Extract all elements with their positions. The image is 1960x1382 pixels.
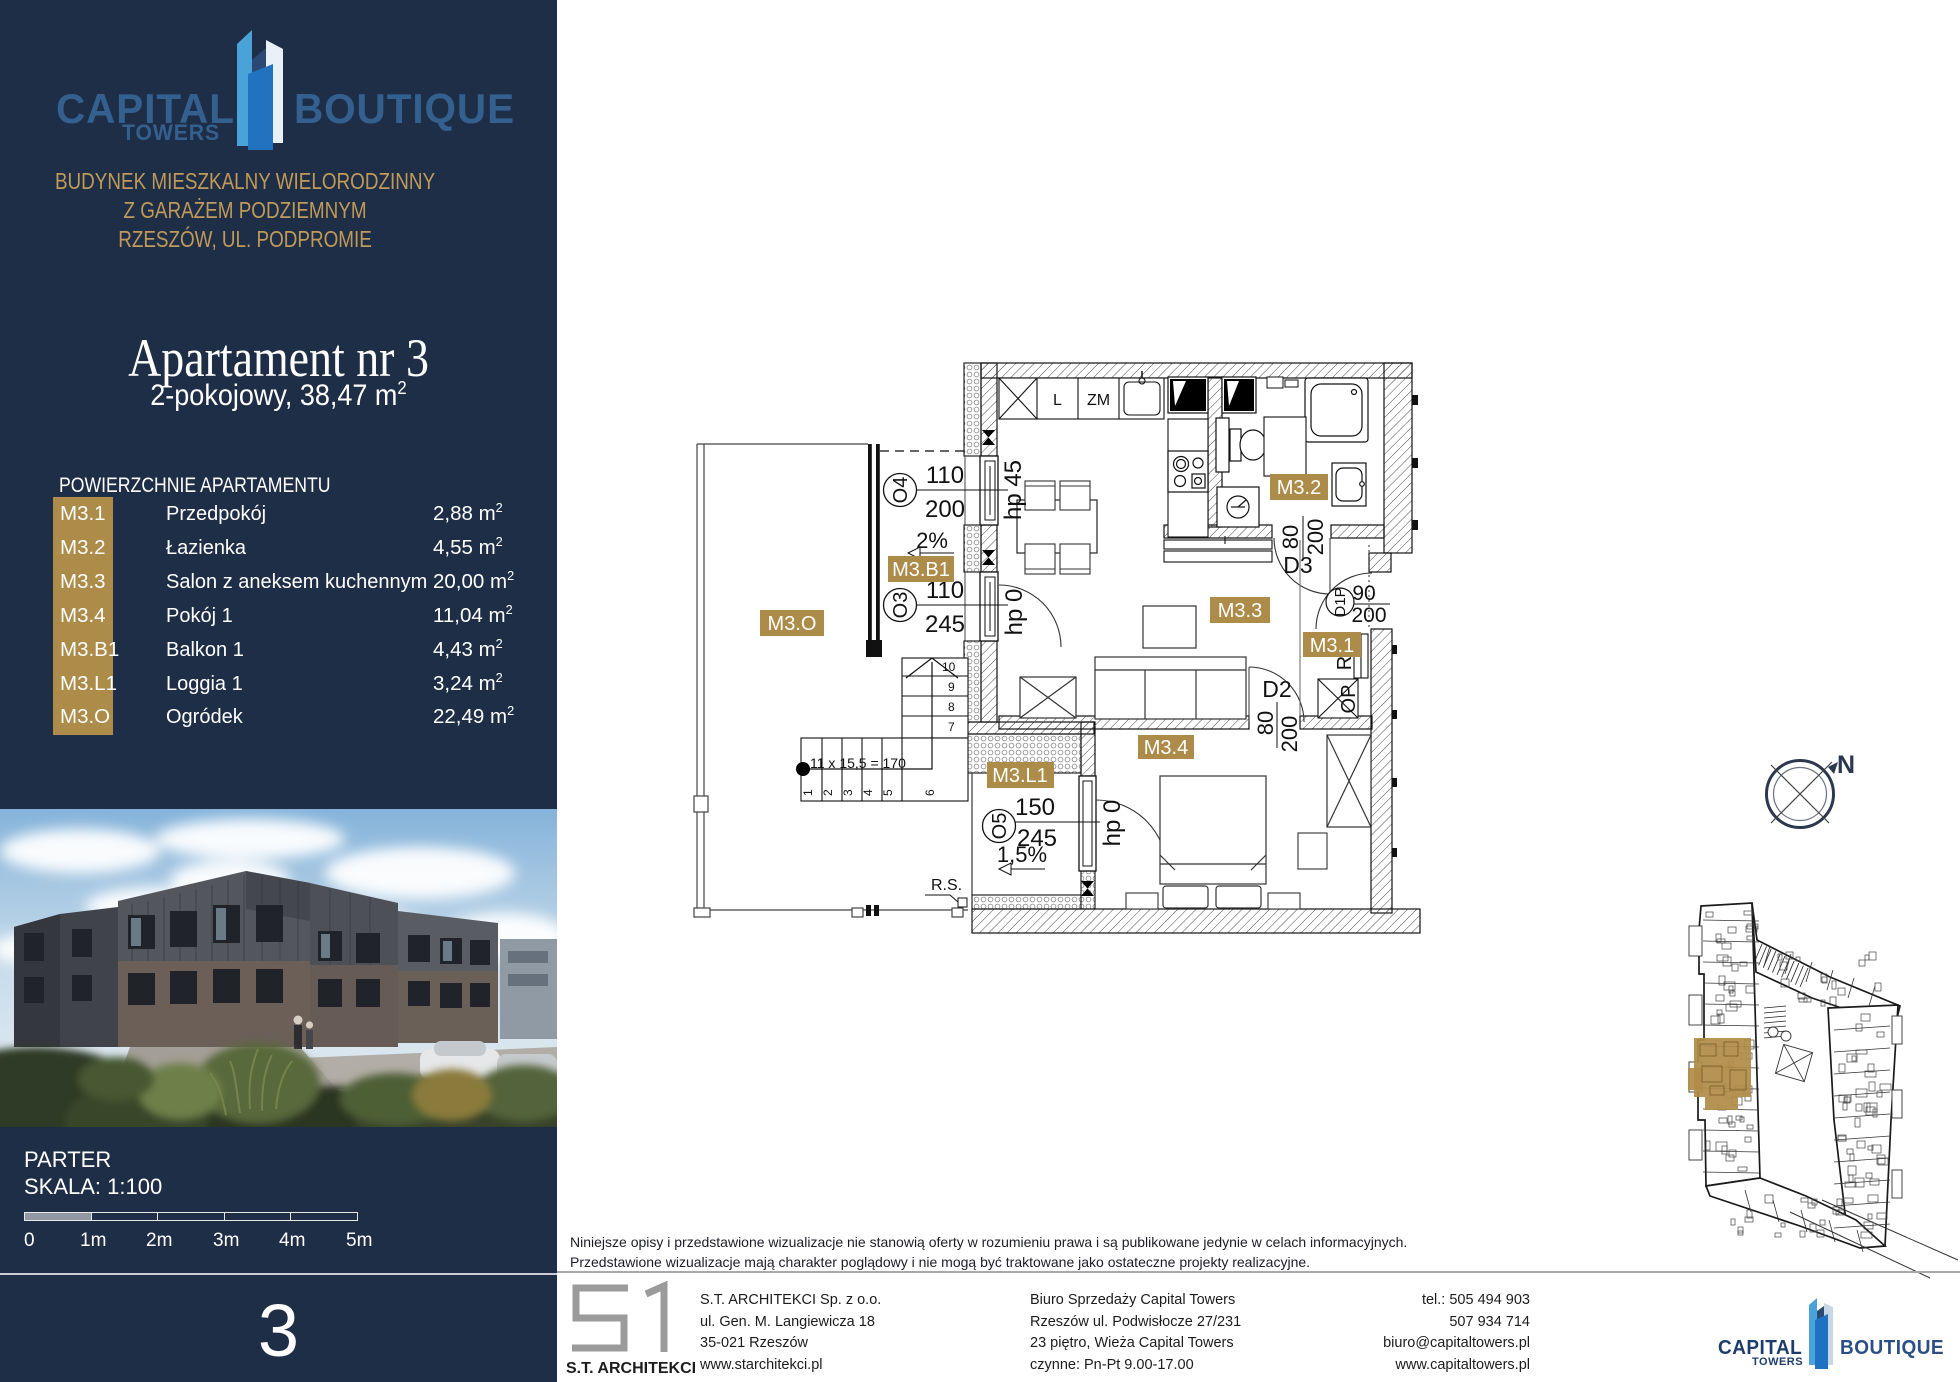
- svg-text:R: R: [1334, 656, 1356, 670]
- svg-text:80: 80: [1278, 525, 1303, 549]
- svg-text:hp 0: hp 0: [1099, 800, 1126, 847]
- svg-text:S.T. ARCHITEKCI: S.T. ARCHITEKCI: [566, 1360, 696, 1377]
- svg-text:4m: 4m: [279, 1230, 305, 1251]
- svg-text:M3.O: M3.O: [768, 613, 817, 635]
- svg-text:R.S.: R.S.: [931, 877, 962, 894]
- svg-text:200: 200: [1351, 604, 1386, 627]
- svg-text:2%: 2%: [916, 528, 948, 553]
- svg-text:80: 80: [1253, 711, 1278, 735]
- svg-text:D2: D2: [1262, 676, 1291, 702]
- svg-text:N: N: [1837, 751, 1855, 779]
- svg-text:hp 0: hp 0: [1001, 589, 1028, 636]
- svg-text:M3.L1: M3.L1: [992, 765, 1048, 787]
- svg-text:hp 45: hp 45: [1000, 460, 1027, 520]
- svg-text:D1P: D1P: [1332, 587, 1349, 616]
- svg-text:90: 90: [1352, 582, 1375, 605]
- svg-text:2m: 2m: [146, 1230, 172, 1251]
- svg-text:110: 110: [926, 462, 964, 489]
- svg-text:O5: O5: [989, 813, 1011, 840]
- svg-text:D3: D3: [1283, 552, 1312, 578]
- svg-text:O4: O4: [890, 477, 912, 504]
- svg-text:1,5%: 1,5%: [997, 842, 1047, 867]
- svg-text:200: 200: [925, 496, 965, 523]
- svg-text:OP: OP: [1338, 685, 1360, 714]
- svg-text:M3.B1: M3.B1: [892, 559, 950, 581]
- svg-text:245: 245: [925, 611, 965, 638]
- svg-text:200: 200: [1277, 716, 1302, 753]
- svg-text:1m: 1m: [80, 1230, 106, 1251]
- svg-text:M3.4: M3.4: [1144, 737, 1188, 759]
- svg-text:M3.2: M3.2: [1277, 477, 1321, 499]
- svg-text:3m: 3m: [213, 1230, 239, 1251]
- svg-text:0: 0: [24, 1230, 35, 1251]
- svg-text:150: 150: [1015, 794, 1055, 821]
- svg-text:M3.3: M3.3: [1218, 600, 1262, 622]
- svg-text:200: 200: [1303, 519, 1328, 556]
- svg-text:M3.1: M3.1: [1310, 635, 1354, 657]
- svg-text:O3: O3: [890, 592, 912, 619]
- svg-text:5m: 5m: [346, 1230, 372, 1251]
